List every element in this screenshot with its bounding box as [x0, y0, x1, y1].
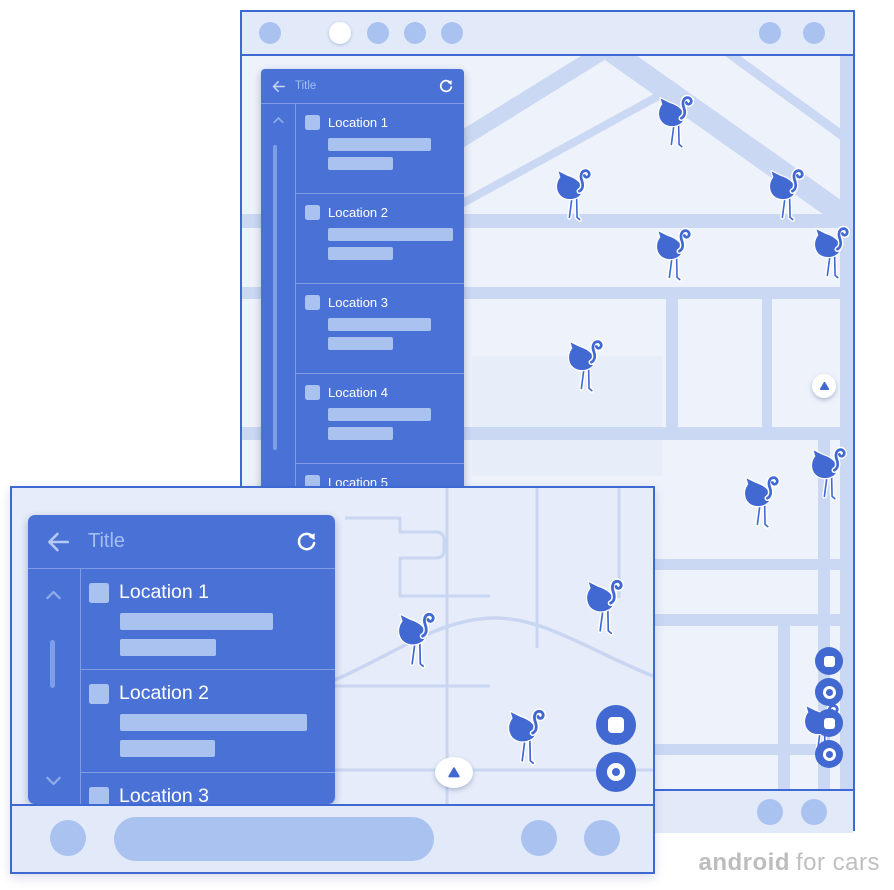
- text-placeholder: [328, 247, 393, 260]
- text-placeholder: [328, 318, 431, 331]
- nav-button[interactable]: [757, 799, 783, 825]
- panel-header: Title: [261, 69, 464, 103]
- place-list-panel: Title: [28, 515, 335, 804]
- place-label: Location 2: [119, 682, 209, 705]
- back-arrow-icon[interactable]: [45, 529, 71, 555]
- landscape-map[interactable]: Title: [12, 488, 653, 804]
- text-placeholder: [328, 408, 431, 421]
- status-dot: [803, 22, 825, 44]
- panel-header: Title: [28, 515, 335, 568]
- brand-watermark: androidfor cars: [698, 849, 880, 877]
- map-button-ring[interactable]: [815, 678, 843, 706]
- status-dot: [404, 22, 426, 44]
- map-button-square[interactable]: [815, 709, 843, 737]
- place-label: Location 4: [328, 385, 388, 400]
- place-label: Location 3: [119, 785, 209, 804]
- ring-icon: [607, 763, 625, 781]
- place-icon: [89, 583, 109, 603]
- map-button-square[interactable]: [815, 647, 843, 675]
- chevron-up-icon[interactable]: [43, 585, 64, 606]
- brand-bold: android: [698, 849, 790, 876]
- portrait-status-bar: [242, 12, 853, 56]
- list-item-location-1[interactable]: Location 1: [296, 104, 464, 194]
- map-button-ring[interactable]: [815, 740, 843, 768]
- text-placeholder: [328, 427, 393, 440]
- scrollbar[interactable]: [273, 145, 277, 450]
- scroll-rail: [28, 569, 81, 804]
- list-item-location-4[interactable]: Location 4: [296, 374, 464, 464]
- flamingo-marker[interactable]: [770, 171, 802, 220]
- place-icon: [305, 115, 320, 130]
- landscape-bottom-bar: [12, 804, 653, 872]
- place-icon: [89, 684, 109, 704]
- status-dot: [759, 22, 781, 44]
- text-placeholder: [120, 714, 307, 731]
- status-dot: [367, 22, 389, 44]
- text-placeholder: [328, 228, 453, 241]
- panel-title: Title: [88, 530, 125, 553]
- list-item-location-2[interactable]: Location 2: [296, 194, 464, 284]
- ring-icon: [823, 686, 836, 699]
- panel-body: Location 1 Location 2 Location 3: [28, 568, 335, 804]
- flamingo-marker[interactable]: [745, 478, 777, 527]
- map-button-square[interactable]: [596, 705, 636, 745]
- chevron-up-icon[interactable]: [271, 113, 286, 128]
- nav-pill-placeholder[interactable]: [114, 817, 434, 861]
- flamingo-marker[interactable]: [509, 711, 543, 763]
- list-item-location-3[interactable]: Location 3: [81, 773, 335, 804]
- refresh-icon[interactable]: [295, 530, 318, 553]
- flamingo-marker[interactable]: [815, 229, 847, 278]
- status-dot: [441, 22, 463, 44]
- text-placeholder: [328, 138, 431, 151]
- text-placeholder: [328, 337, 393, 350]
- compass-button[interactable]: [435, 757, 473, 788]
- chevron-down-icon[interactable]: [43, 770, 64, 791]
- text-placeholder: [328, 157, 393, 170]
- map-button-ring[interactable]: [596, 752, 636, 792]
- refresh-icon[interactable]: [438, 78, 454, 94]
- list-item-location-2[interactable]: Location 2: [81, 670, 335, 773]
- flamingo-marker[interactable]: [812, 450, 844, 499]
- flamingo-marker[interactable]: [569, 342, 601, 391]
- place-icon: [89, 787, 109, 805]
- back-arrow-icon[interactable]: [271, 79, 286, 94]
- nav-button[interactable]: [50, 820, 86, 856]
- place-label: Location 3: [328, 295, 388, 310]
- text-placeholder: [120, 740, 215, 757]
- map-action-buttons: [596, 705, 636, 792]
- list-item-location-3[interactable]: Location 3: [296, 284, 464, 374]
- place-label: Location 1: [119, 581, 209, 604]
- text-placeholder: [120, 613, 273, 630]
- nav-button[interactable]: [584, 820, 620, 856]
- place-icon: [305, 205, 320, 220]
- flamingo-marker[interactable]: [657, 231, 689, 280]
- map-action-buttons: [815, 647, 843, 768]
- rounded-square-icon: [608, 717, 624, 733]
- nav-button[interactable]: [521, 820, 557, 856]
- brand-regular: for cars: [796, 849, 880, 876]
- status-dot: [259, 22, 281, 44]
- compass-button[interactable]: [812, 374, 836, 398]
- nav-button[interactable]: [801, 799, 827, 825]
- place-icon: [305, 385, 320, 400]
- place-icon: [305, 295, 320, 310]
- ring-icon: [823, 748, 836, 761]
- flamingo-marker[interactable]: [659, 98, 691, 147]
- canvas: Title Location 1: [0, 0, 894, 890]
- text-placeholder: [120, 639, 216, 656]
- landscape-car-screen: Title: [10, 486, 655, 874]
- status-dot-active: [329, 22, 351, 44]
- flamingo-marker[interactable]: [399, 614, 433, 666]
- place-label: Location 2: [328, 205, 388, 220]
- rounded-square-icon: [824, 718, 835, 729]
- location-list: Location 1 Location 2 Location 3: [81, 569, 335, 804]
- list-item-location-1[interactable]: Location 1: [81, 569, 335, 670]
- place-label: Location 1: [328, 115, 388, 130]
- flamingo-marker[interactable]: [557, 171, 589, 220]
- scrollbar[interactable]: [50, 640, 55, 688]
- flamingo-marker[interactable]: [587, 581, 621, 633]
- rounded-square-icon: [824, 656, 835, 667]
- panel-title: Title: [295, 80, 316, 92]
